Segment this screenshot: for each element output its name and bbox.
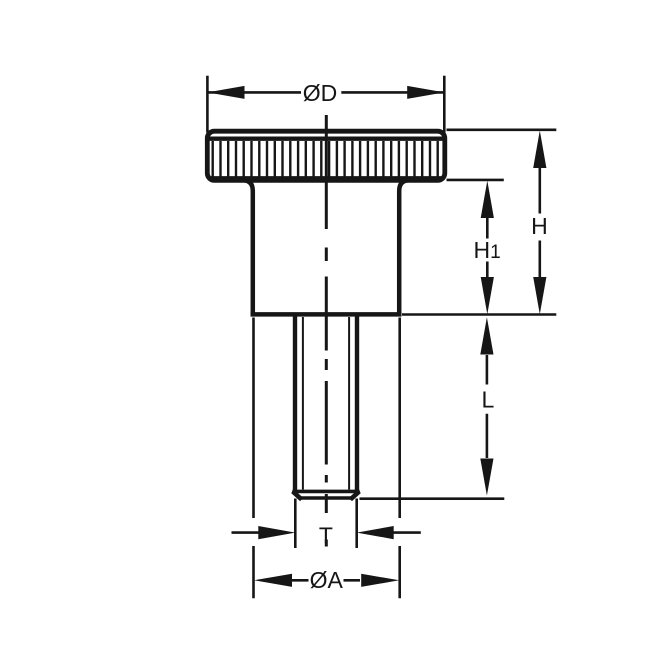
svg-text:L: L	[482, 386, 495, 412]
svg-text:ØA: ØA	[310, 567, 344, 593]
svg-text:T: T	[319, 523, 333, 549]
svg-text:H: H	[531, 213, 548, 239]
svg-text:ØD: ØD	[303, 80, 338, 106]
